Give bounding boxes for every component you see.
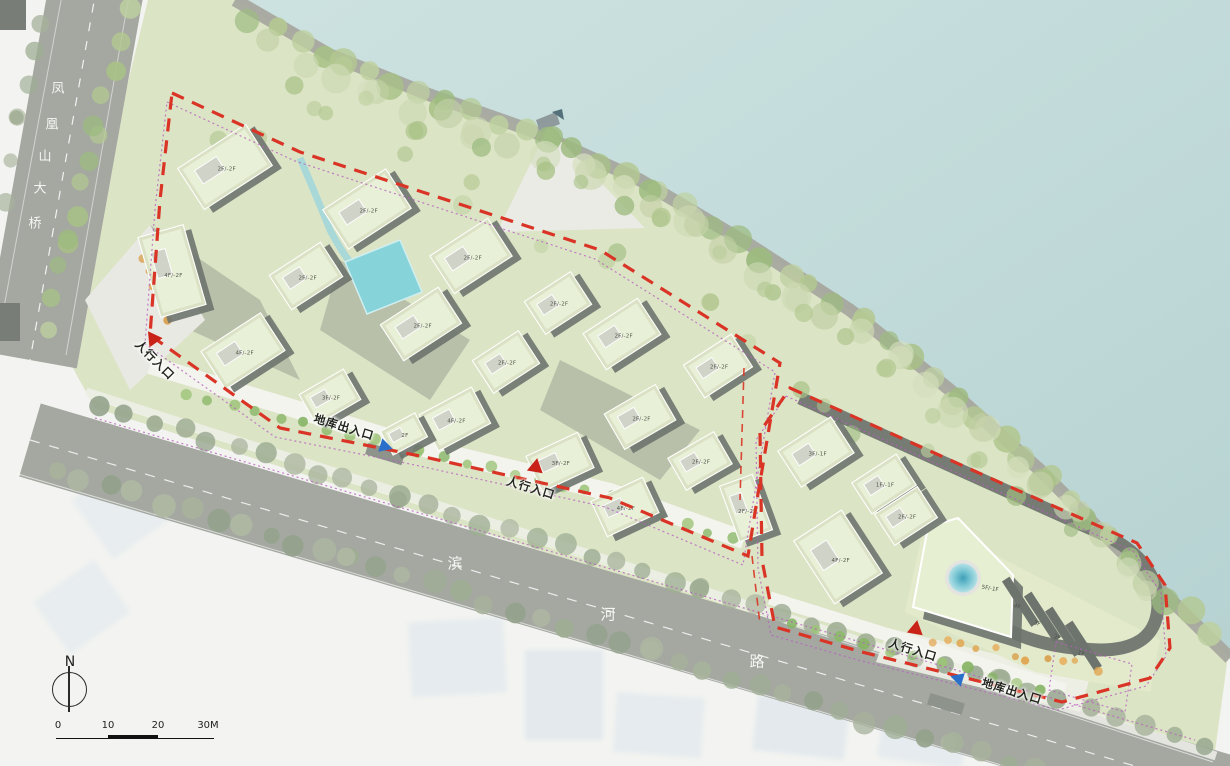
site-plan: 2F/-2F4F/-2F4F/-2F2F/-2F2F/-2F2F/-2F2F/-…: [0, 0, 1230, 766]
road-char: 滨: [447, 553, 462, 574]
setback-lines: [95, 102, 1195, 740]
road-char: 凰: [45, 114, 58, 133]
scale-track: [56, 735, 214, 739]
scale-tick: 0: [55, 720, 61, 731]
road-char: 桥: [28, 213, 41, 232]
road-char: 河: [600, 604, 615, 625]
scale-tick: 30M: [197, 720, 218, 731]
scale-tick: 10: [102, 720, 115, 731]
scale-tick: 20: [152, 720, 165, 731]
road-char: 大: [33, 178, 46, 197]
boundary-overlay: [0, 0, 1230, 766]
site-boundary-main: [150, 93, 780, 556]
road-char: 路: [749, 651, 764, 672]
north-arrow: N: [50, 654, 90, 726]
site-boundary-east: [760, 388, 1170, 702]
north-label: N: [65, 654, 75, 670]
pedestrian-arrow-icon: [907, 619, 925, 636]
road-char: 凤: [51, 78, 64, 97]
compass-needle-icon: [68, 666, 70, 712]
scale-bar: 0 10 20 30M: [56, 720, 226, 746]
site-boundary: [150, 93, 1170, 702]
pedestrian-arrow-icon: [527, 457, 545, 474]
road-char: 山: [38, 146, 51, 165]
